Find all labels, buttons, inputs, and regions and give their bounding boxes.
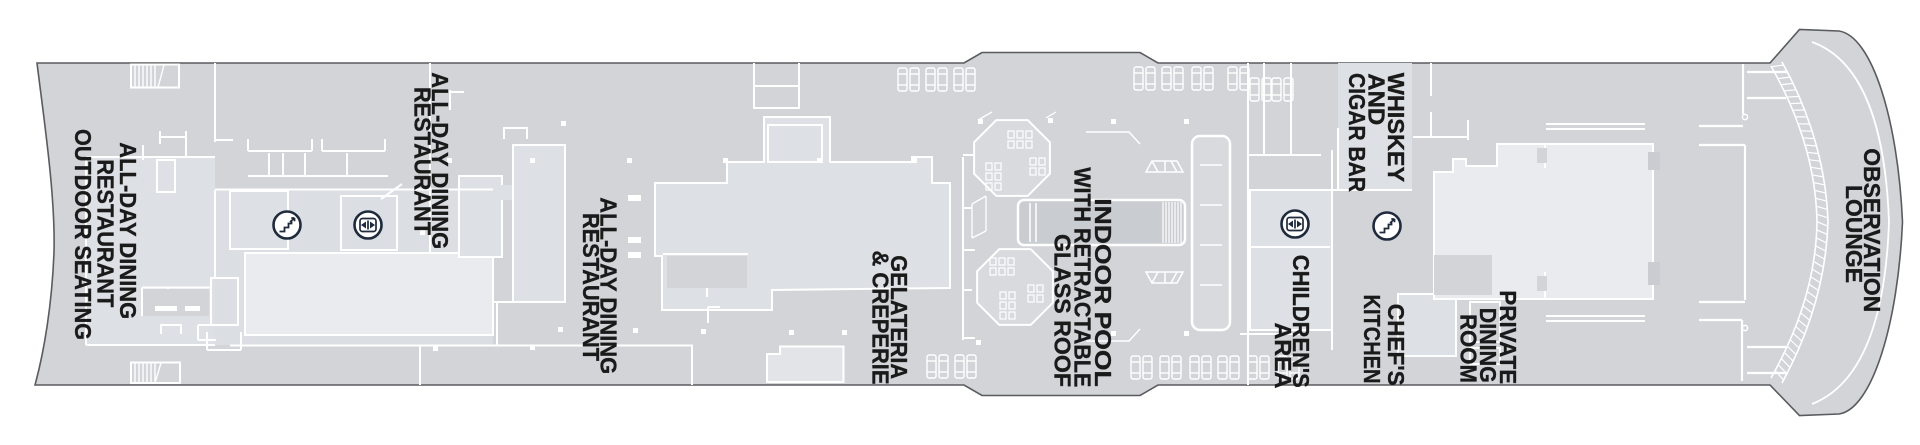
svg-text:CHEF'S KITCHEN: CHEF'S KITCHEN xyxy=(1359,295,1409,393)
svg-text:GELATERIA & CREPERIE: GELATERIA & CREPERIE xyxy=(868,251,913,385)
svg-text:ALL-DAY DINING RESTAURANT: ALL-DAY DINING RESTAURANT OUTDOOR SEATIN… xyxy=(70,129,141,340)
svg-text:ALL-DAY DINING RESTAURANT: ALL-DAY DINING RESTAURANT xyxy=(578,197,622,381)
svg-text:ALL-DAY DINING RESTAURANT: ALL-DAY DINING RESTAURANT xyxy=(409,72,453,256)
